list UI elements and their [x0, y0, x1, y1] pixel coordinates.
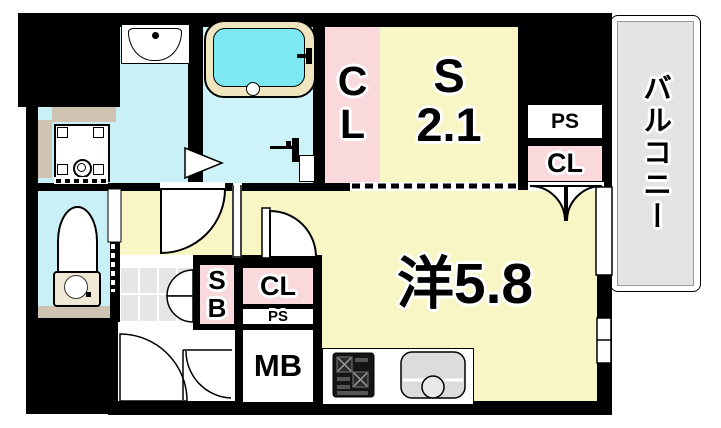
mb-label: MB: [254, 350, 302, 382]
wall: [26, 183, 38, 320]
kitchen-counter: [322, 348, 474, 405]
wall: [18, 13, 120, 107]
bathtub-water: [213, 28, 305, 87]
wall: [597, 190, 612, 403]
washroom-counter-side: [38, 120, 52, 178]
closet-top-label: CL: [325, 55, 380, 150]
bathtub-drain: [246, 82, 260, 96]
toilet-counter: [38, 306, 110, 318]
wall: [188, 13, 203, 183]
wall: [242, 183, 350, 191]
pan-corner: [57, 127, 68, 138]
pan-corner: [93, 164, 104, 175]
pan-corner: [93, 127, 104, 138]
pan-corner: [57, 164, 68, 175]
shower-faucet-knob: [286, 141, 291, 146]
cl-right-label: CL: [547, 149, 583, 177]
wash-basin-faucet: [152, 32, 159, 39]
meter-box: MB: [243, 330, 313, 402]
cl-center-label: CL: [260, 272, 296, 300]
hallway-area: [120, 190, 235, 255]
floor-plan: PS CL SB CL PS MB: [0, 0, 721, 428]
wall: [110, 190, 120, 322]
bath-counter: [299, 155, 315, 182]
wall: [26, 318, 118, 414]
entrance-door-swing: [120, 334, 187, 401]
toilet-tank-lid: [64, 275, 88, 299]
closet-right: CL: [528, 146, 602, 181]
ps-center-label: PS: [268, 309, 288, 325]
bathtub-faucet-handle: [297, 54, 307, 58]
pipe-space-center: PS: [243, 309, 313, 324]
wall: [26, 183, 160, 191]
shower-faucet: [292, 138, 299, 162]
ps-right-label: PS: [551, 111, 579, 133]
pipe-space-right: PS: [528, 105, 602, 138]
entry-door-swing: [186, 351, 231, 398]
service-room-label: S2.1: [380, 42, 518, 160]
wall: [225, 183, 233, 191]
closet-center: CL: [243, 268, 313, 304]
toilet-flush-button: [86, 292, 91, 297]
main-room-label: 洋5.8: [340, 250, 590, 320]
entrance-tile: [120, 268, 193, 323]
shoe-box: SB: [200, 265, 234, 324]
pan-drain-inner: [77, 163, 86, 172]
sb-label-b: B: [208, 295, 227, 322]
balcony-label: バルコニー: [617, 30, 692, 275]
sb-label-s: S: [208, 267, 225, 294]
wall: [26, 107, 38, 183]
